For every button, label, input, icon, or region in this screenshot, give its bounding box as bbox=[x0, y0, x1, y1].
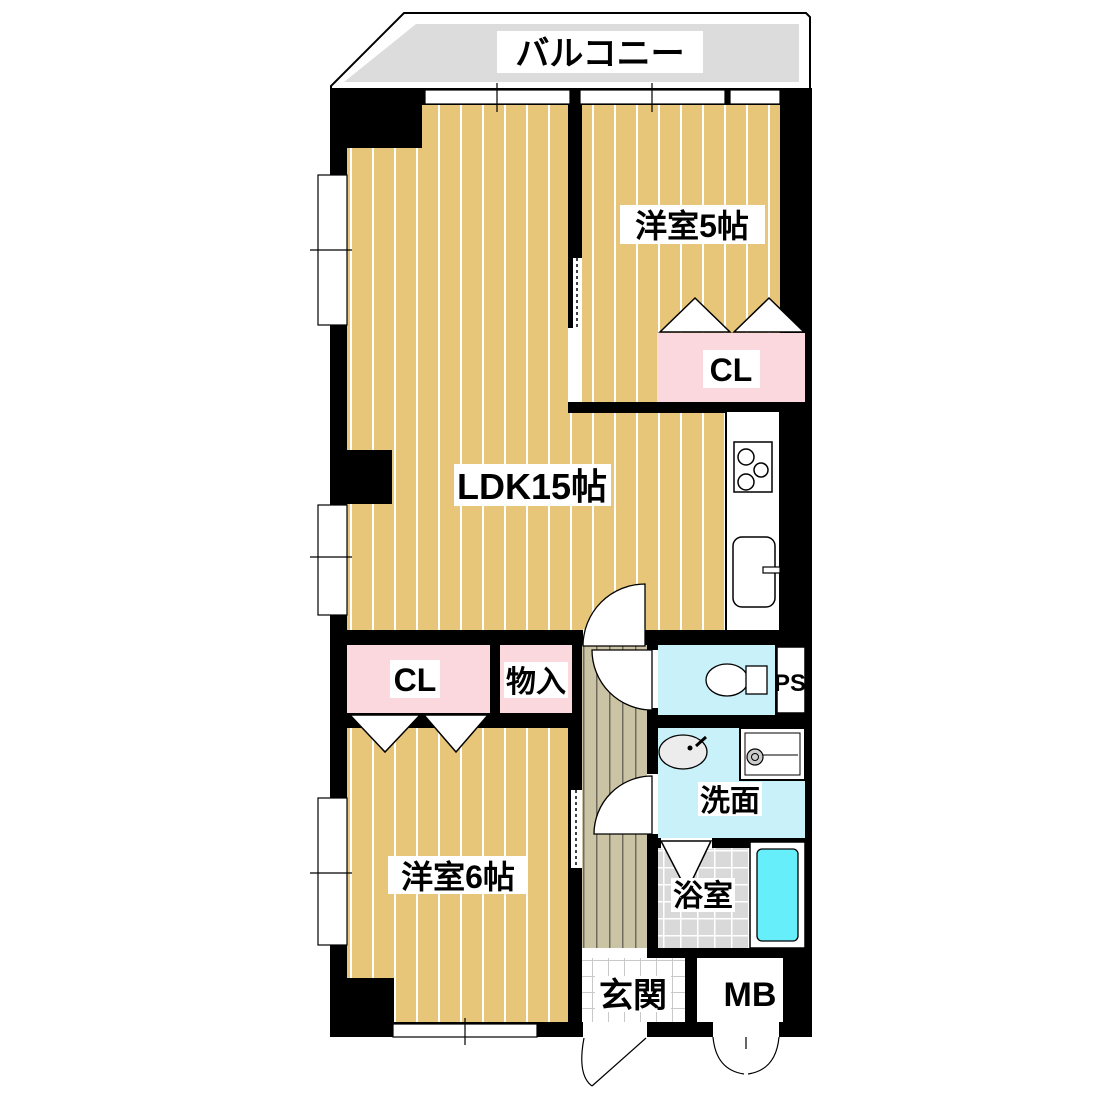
washer-drain-icon bbox=[747, 749, 763, 765]
opening-entrance-door bbox=[583, 1022, 647, 1037]
wall-block-bottom-left bbox=[332, 978, 394, 1024]
opening-meter-box-door bbox=[713, 1022, 779, 1037]
floor-plan-canvas: バルコニー bbox=[0, 0, 1120, 1120]
closet-storage-divider-wall bbox=[490, 645, 500, 713]
window-left-ldk-lower bbox=[318, 505, 347, 615]
toilet-tank-icon bbox=[746, 666, 767, 694]
floor-plan-drawing: バルコニー bbox=[0, 0, 1120, 1120]
entrance-step bbox=[582, 948, 647, 958]
washroom-label: 洗面 bbox=[700, 785, 760, 818]
ldk-floor-dining bbox=[568, 413, 728, 630]
storage-label: 物入 bbox=[506, 666, 566, 699]
balcony-label: バルコニー bbox=[515, 35, 684, 73]
meter-box-label: MB bbox=[724, 976, 777, 1014]
wall-block-mid-left bbox=[342, 450, 392, 504]
ldk-label: LDK15帖 bbox=[457, 466, 607, 507]
toilet-fixture bbox=[706, 664, 767, 696]
wall-block-top-left bbox=[345, 92, 422, 148]
bathtub-icon bbox=[757, 849, 798, 941]
entrance-door-leaf bbox=[592, 1038, 646, 1086]
balcony: バルコニー bbox=[331, 13, 810, 90]
meter-box-door-arc bbox=[713, 1037, 744, 1074]
entrance-door-arc bbox=[582, 1038, 592, 1086]
window-left-room6 bbox=[318, 798, 347, 945]
western-room-6-label: 洋室6帖 bbox=[401, 859, 515, 895]
opening-ldk-room5 bbox=[568, 328, 582, 402]
bathtub-fixture bbox=[750, 842, 805, 948]
meter-box-door-arc bbox=[748, 1037, 779, 1074]
entrance-label: 玄関 bbox=[599, 977, 667, 1015]
bathroom-label: 浴室 bbox=[673, 879, 733, 913]
washbasin-icon bbox=[659, 735, 707, 769]
exterior-door-swings bbox=[582, 1037, 779, 1086]
kitchen-counter bbox=[726, 411, 780, 631]
closet-lower-label: CL bbox=[394, 662, 437, 698]
window-top-room5-b bbox=[730, 90, 780, 104]
kitchen-faucet-icon bbox=[763, 567, 780, 573]
western-room-5-label: 洋室5帖 bbox=[635, 208, 749, 244]
pipe-space-label: PS bbox=[774, 670, 806, 697]
closet-upper-label: CL bbox=[710, 352, 753, 388]
toilet-bowl-icon bbox=[706, 664, 748, 696]
washbasin-drain-icon bbox=[688, 746, 693, 751]
ldk-floor-main bbox=[347, 105, 568, 630]
